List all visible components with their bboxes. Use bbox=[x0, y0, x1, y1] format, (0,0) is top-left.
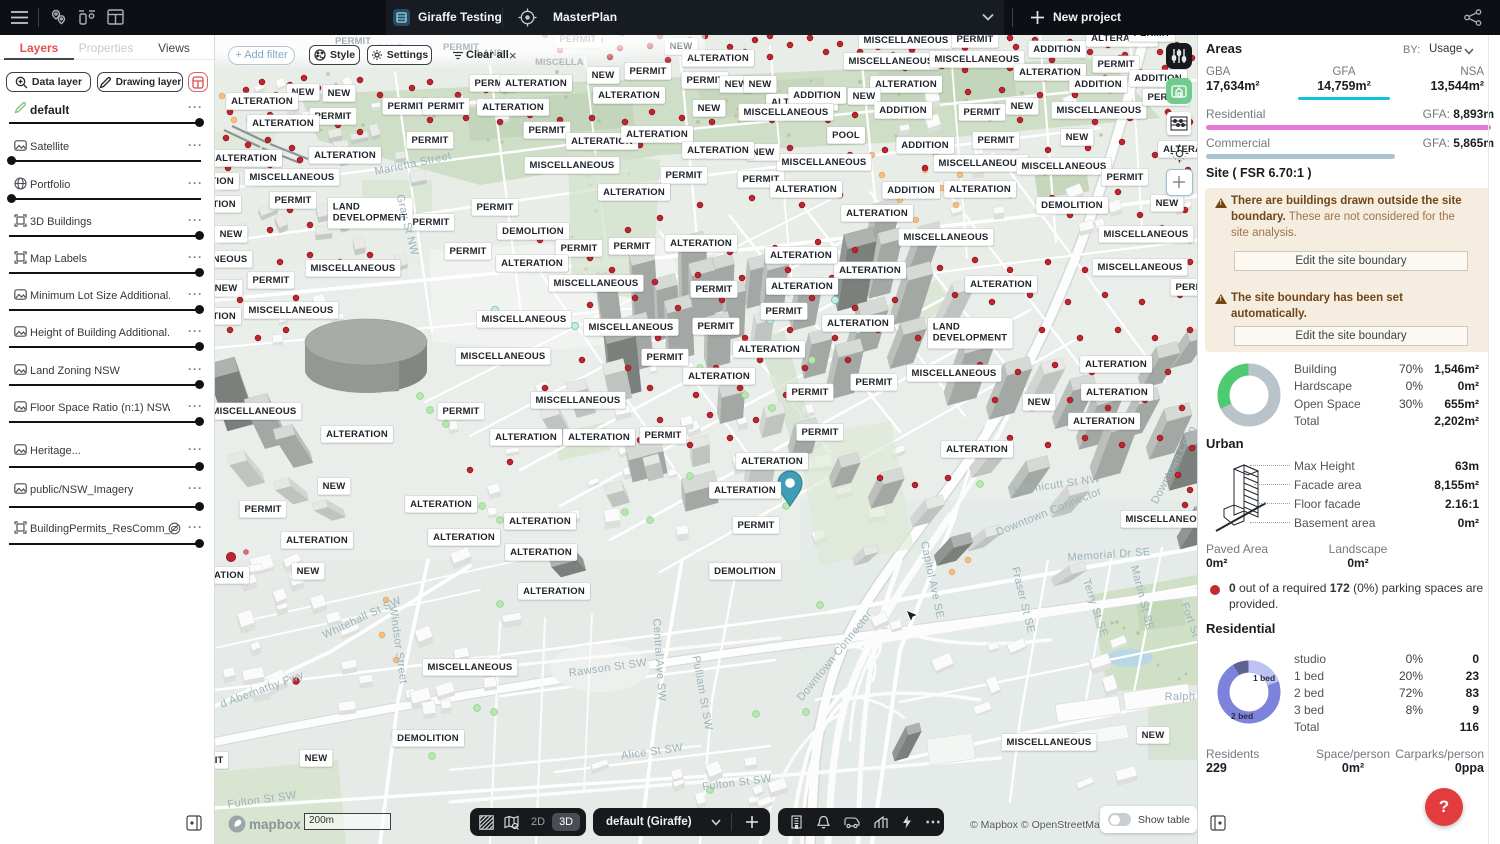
svg-text:mapbox: mapbox bbox=[249, 817, 301, 832]
